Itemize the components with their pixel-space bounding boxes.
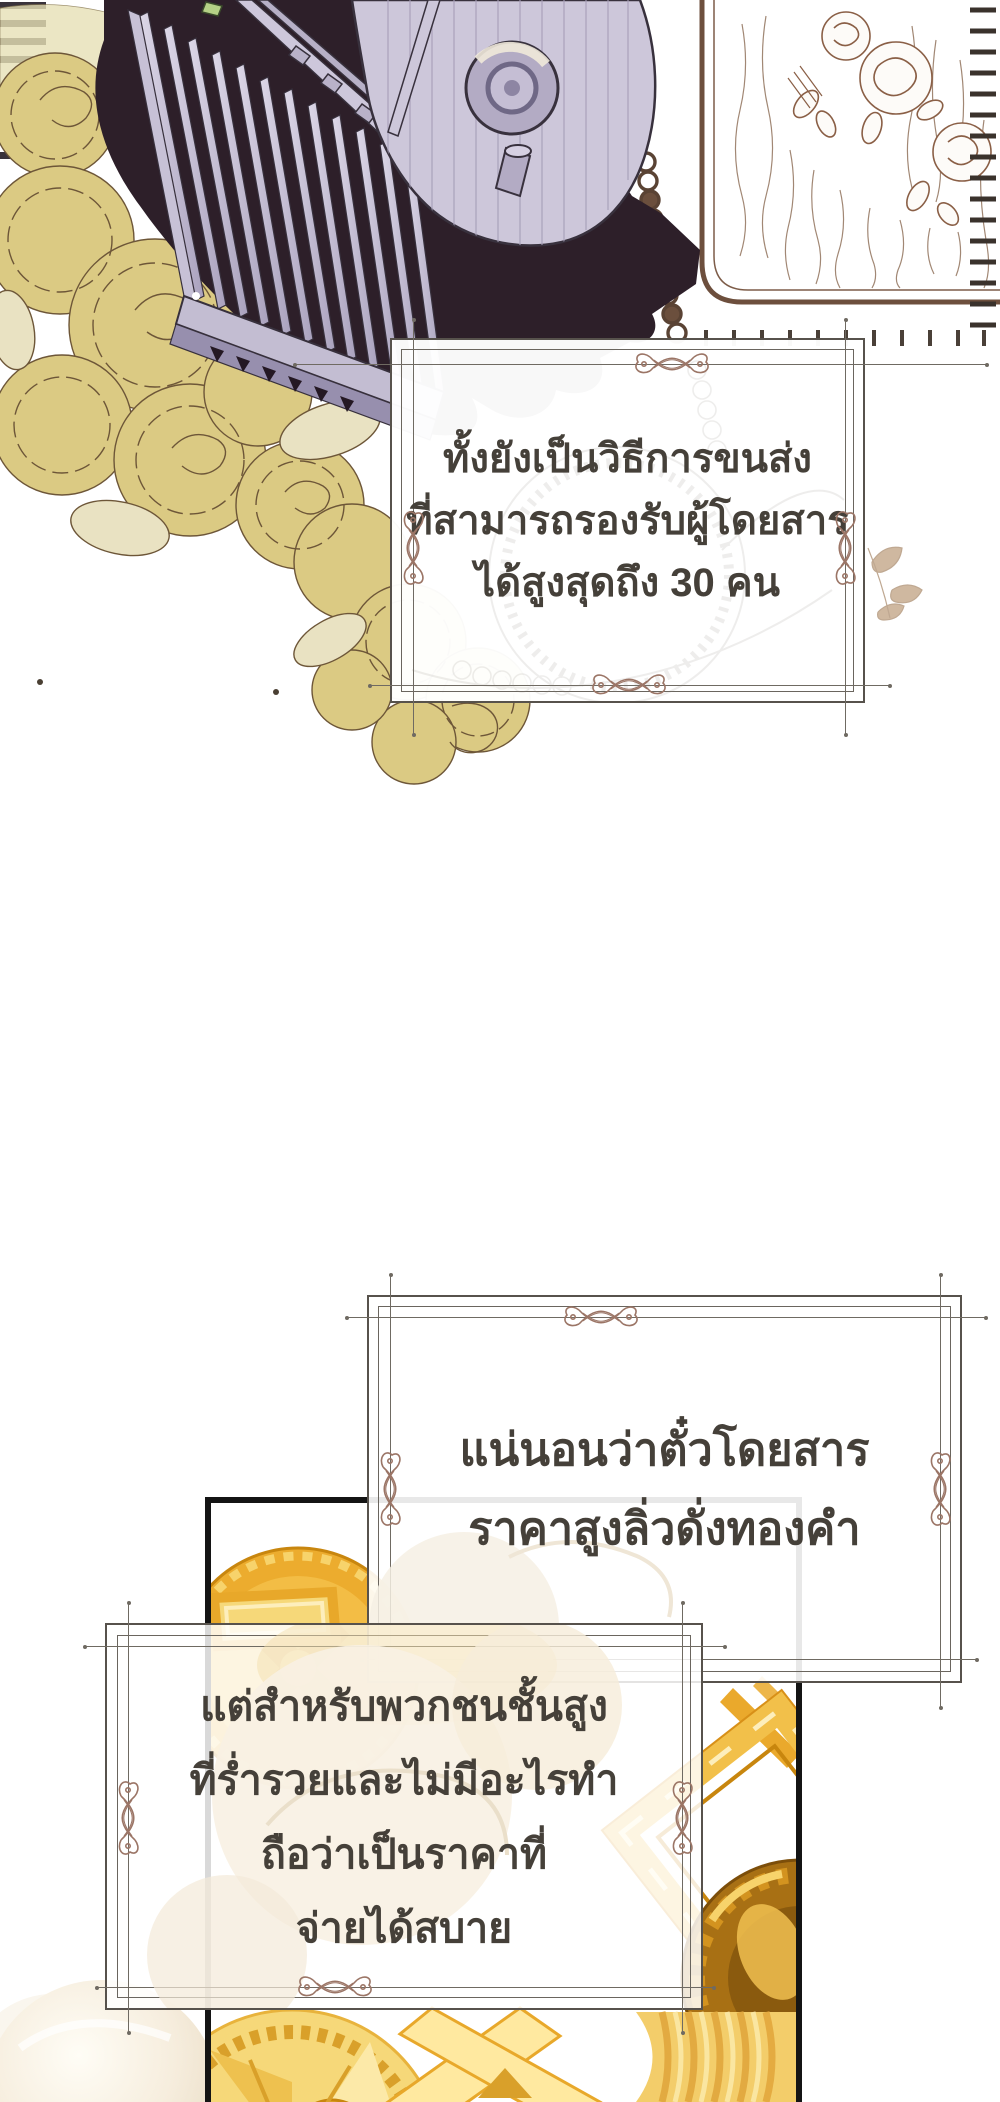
narration-line: ถือว่าเป็นราคาที่ — [261, 1817, 547, 1891]
narration-line: แต่สำหรับพวกชนชั้นสูง — [200, 1669, 608, 1743]
narration-text: แต่สำหรับพวกชนชั้นสูง ที่ร่ำรวยและไม่มีอ… — [121, 1639, 687, 1994]
narration-line: ที่สามารถรองรับผู้โดยสาร — [406, 490, 848, 552]
narration-text: ทั้งยังเป็นวิธีการขนส่ง ที่สามารถรองรับผ… — [406, 354, 849, 687]
webtoon-page: ทั้งยังเป็นวิธีการขนส่ง ที่สามารถรองรับผ… — [0, 0, 1000, 2102]
narration-line: จ่ายได้สบาย — [296, 1891, 512, 1965]
gold-ribbon-x — [388, 2008, 600, 2102]
narration-box-3: แต่สำหรับพวกชนชั้นสูง ที่ร่ำรวยและไม่มีอ… — [105, 1623, 703, 2010]
gold-drape — [636, 2012, 796, 2102]
narration-line: ราคาสูงลิ่วดั่งทองคำ — [468, 1489, 860, 1568]
engraved-roses — [788, 12, 991, 229]
narration-line: ทั้งยังเป็นวิธีการขนส่ง — [443, 428, 812, 490]
narration-text: แน่นอนว่าตั๋วโดยสาร ราคาสูงลิ่วดั่งทองคำ — [383, 1311, 946, 1667]
narration-line: ได้สูงสุดถึง 30 คน — [475, 552, 780, 614]
narration-line: ที่ร่ำรวยและไม่มีอะไรทำ — [190, 1743, 619, 1817]
narration-box-1: ทั้งยังเป็นวิธีการขนส่ง ที่สามารถรองรับผ… — [390, 338, 865, 703]
leaf-sprig-decoration — [868, 547, 922, 620]
wood-sign — [702, 0, 1000, 302]
narration-line: แน่นอนว่าตั๋วโดยสาร — [459, 1410, 869, 1489]
